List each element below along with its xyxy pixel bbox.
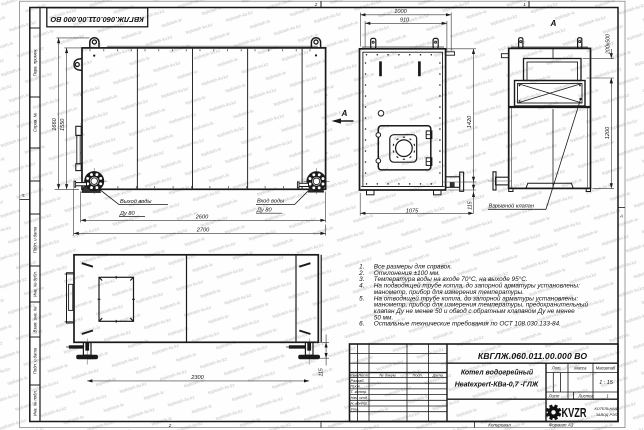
svg-text:Подп.: Подп. [413,372,423,377]
svg-text:Масса: Масса [574,366,587,371]
svg-text:Ду 80: Ду 80 [119,211,135,217]
svg-text:КОТЕЛЬНЫЙ: КОТЕЛЬНЫЙ [595,407,619,411]
svg-text:4.: 4. [359,283,364,290]
svg-text:Инв. № дубл.: Инв. № дубл. [33,271,38,297]
svg-text:КВГЛЖ.060.011.00.000 ВО: КВГЛЖ.060.011.00.000 ВО [478,351,588,361]
svg-text:А: А [619,214,623,219]
svg-text:1000: 1000 [394,9,407,15]
svg-text:Лист: Лист [357,372,369,377]
svg-text:Нач. отд.: Нач. отд. [351,395,368,400]
svg-text:Формат А3: Формат А3 [549,423,574,428]
svg-text:Подп. и дата: Подп. и дата [33,347,38,374]
svg-text:Ду 80: Ду 80 [256,208,272,214]
svg-text:200х500: 200х500 [605,34,611,55]
svg-text:А: А [341,109,348,118]
svg-text:Дата: Дата [432,372,444,377]
svg-text:910: 910 [400,17,410,23]
svg-text:КВГЛЖ.060.011.00.000 ВО: КВГЛЖ.060.011.00.000 ВО [50,15,144,24]
svg-text:Утв.: Утв. [351,406,360,411]
svg-text:Heatexpert-КВа-0,7 -ГЛЖ: Heatexpert-КВа-0,7 -ГЛЖ [455,382,539,389]
svg-text:Взам. инв. №: Взам. инв. № [33,306,38,332]
svg-text:Копировал: Копировал [488,423,511,428]
svg-text:2600: 2600 [195,214,209,220]
svg-text:Справ. №: Справ. № [33,113,38,132]
svg-text:ЗАВОД РЭП: ЗАВОД РЭП [596,413,618,417]
svg-text:А: А [550,19,557,28]
svg-text:1550: 1550 [60,118,66,131]
svg-text:Котел водогрейный: Котел водогрейный [461,369,534,377]
svg-text:Взрывной клапан: Взрывной клапан [489,203,534,210]
svg-text:Лист: Лист [548,394,560,399]
svg-text:115: 115 [319,368,325,376]
svg-text:Перв. примен.: Перв. примен. [33,49,38,77]
svg-text:2700: 2700 [196,227,210,233]
svg-text:2300: 2300 [190,375,204,381]
svg-text:Изм: Изм [350,372,358,377]
svg-text:А: А [21,194,26,198]
svg-text:1: 1 [523,2,526,7]
svg-text:Лит.: Лит. [551,366,562,371]
svg-text:Листов: Листов [577,394,594,399]
svg-text:1420: 1420 [467,115,473,128]
svg-text:Пров.: Пров. [351,384,361,389]
svg-text:1660: 1660 [52,117,58,130]
svg-text:клапан Ду не менее 50 и обвод: клапан Ду не менее 50 и обвод с обратным… [374,307,575,315]
svg-text:Подп. и дата: Подп. и дата [33,226,38,253]
svg-text:Остальные технические требован: Остальные технические требования по ОСТ … [374,320,561,328]
svg-text:6.: 6. [359,321,364,328]
svg-text:KVZR: KVZR [562,405,587,420]
svg-text:Вход воды: Вход воды [257,199,284,205]
svg-text:Т. контр.: Т. контр. [351,389,368,394]
svg-text:№ докум.: № докум. [379,372,396,377]
svg-text:Выход воды: Выход воды [120,199,151,205]
svg-text:1: 1 [606,394,608,399]
svg-text:1075: 1075 [406,208,419,214]
svg-text:1200: 1200 [605,126,611,139]
svg-text:Масштаб: Масштаб [596,366,616,371]
svg-text:2: 2 [168,423,172,428]
svg-text:Н. контр.: Н. контр. [351,401,369,406]
svg-text:1 : 15: 1 : 15 [599,380,613,386]
svg-text:Разраб.: Разраб. [351,378,365,383]
svg-text:5.: 5. [359,295,364,302]
svg-text:2: 2 [314,2,318,7]
svg-text:Инв. № подл.: Инв. № подл. [33,390,38,416]
svg-text:115: 115 [467,201,473,209]
